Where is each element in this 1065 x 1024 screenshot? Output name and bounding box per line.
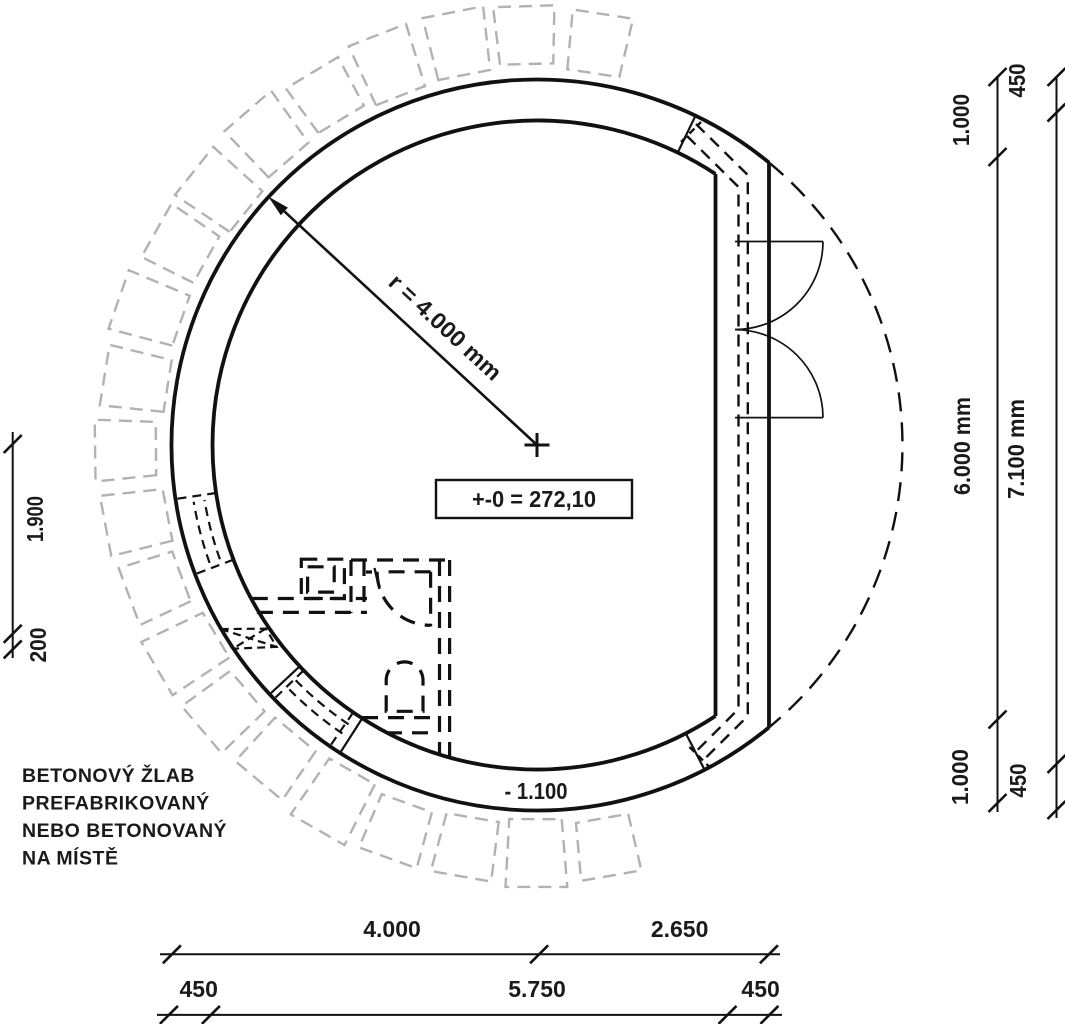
svg-text:7.100 mm: 7.100 mm [1003, 399, 1029, 499]
svg-text:5.750: 5.750 [508, 976, 566, 1002]
svg-text:1.900: 1.900 [22, 496, 48, 542]
svg-text:- 1.100: - 1.100 [505, 778, 568, 804]
svg-text:450: 450 [741, 976, 779, 1002]
svg-text:6.000 mm: 6.000 mm [949, 397, 975, 495]
svg-text:450: 450 [180, 976, 218, 1002]
svg-text:1.000: 1.000 [948, 94, 974, 146]
svg-text:BETONOVÝ ŽLAB: BETONOVÝ ŽLAB [22, 763, 195, 787]
svg-text:1.000: 1.000 [947, 749, 973, 805]
svg-text:450: 450 [1005, 764, 1031, 798]
svg-text:+-0 = 272,10: +-0 = 272,10 [472, 486, 596, 512]
svg-text:NEBO BETONOVANÝ: NEBO BETONOVANÝ [22, 818, 227, 842]
svg-text:NA MÍSTĚ: NA MÍSTĚ [22, 846, 118, 870]
svg-text:4.000: 4.000 [363, 916, 421, 942]
svg-text:PREFABRIKOVANÝ: PREFABRIKOVANÝ [22, 791, 210, 815]
svg-text:450: 450 [1004, 64, 1030, 98]
svg-text:200: 200 [25, 628, 51, 663]
svg-text:2.650: 2.650 [651, 916, 709, 942]
